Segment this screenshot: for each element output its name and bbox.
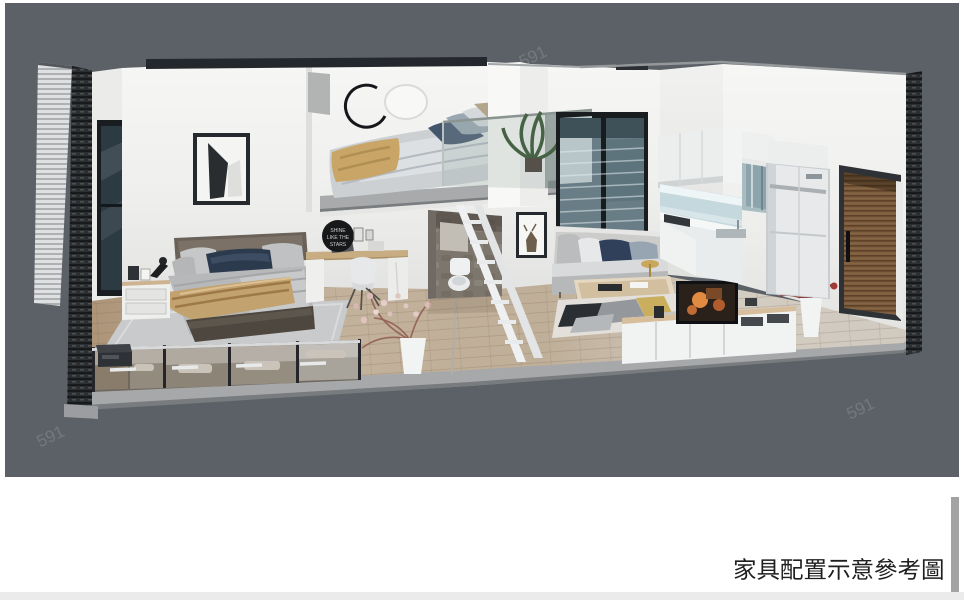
svg-text:LIKE THE: LIKE THE xyxy=(327,235,350,241)
svg-text:SHINE: SHINE xyxy=(330,228,346,234)
svg-text:STARS: STARS xyxy=(330,242,347,248)
